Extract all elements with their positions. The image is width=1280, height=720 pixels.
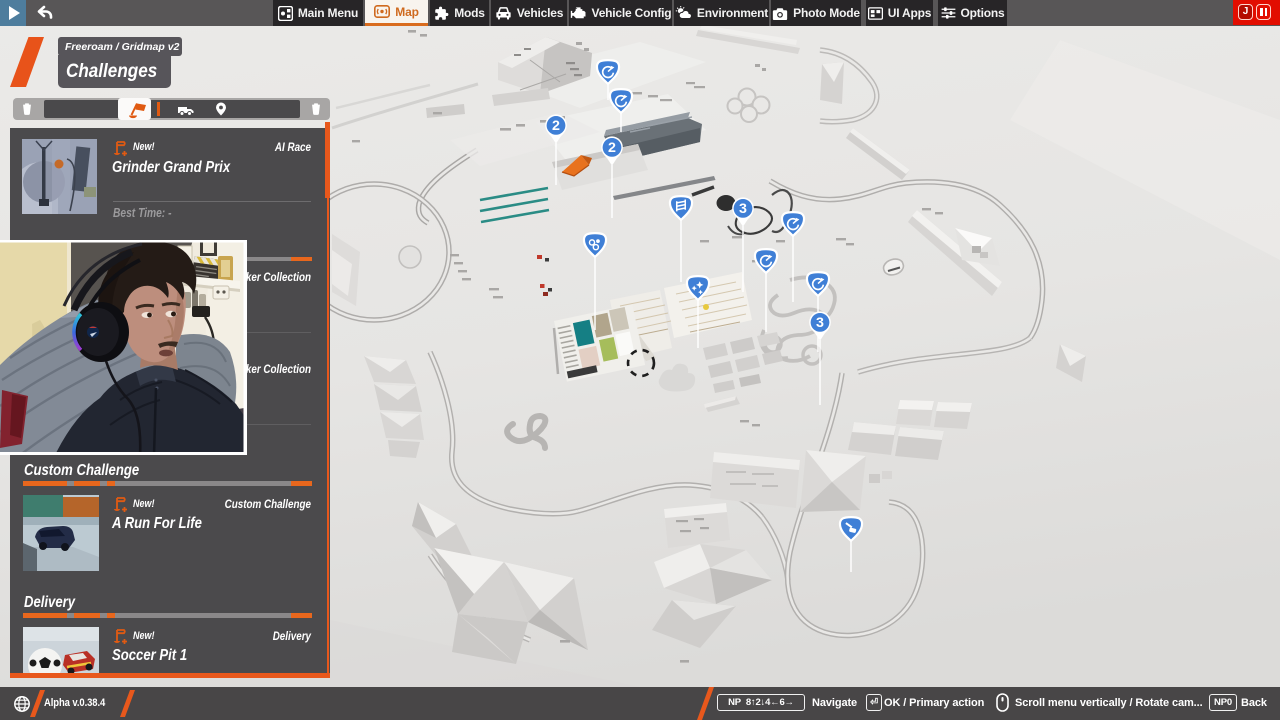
svg-text:2: 2: [608, 140, 616, 156]
svg-text:3: 3: [739, 201, 747, 217]
svg-text:3: 3: [816, 315, 824, 331]
svg-text:2: 2: [552, 118, 560, 134]
